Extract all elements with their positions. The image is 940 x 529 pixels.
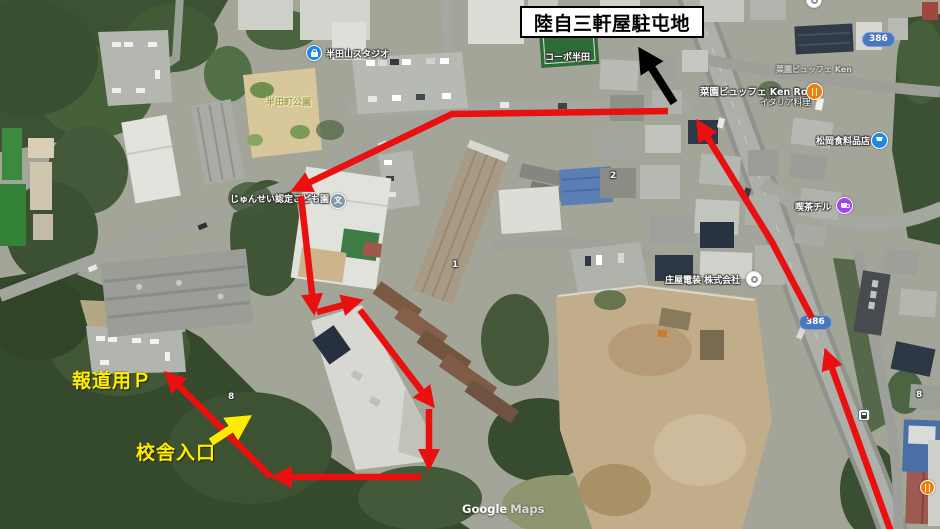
restaurant-icon[interactable]: [806, 83, 823, 100]
building-number-1: 1: [452, 260, 458, 270]
label-shoya-denso[interactable]: 庄屋電装 株式会社: [665, 273, 740, 286]
cart-glyph: [876, 137, 883, 142]
annotated-satellite-map[interactable]: コーポ半田 半田山スタジオ 半田町公園 じゅんせい認定こども園 文 菜園ビュッフ…: [0, 0, 940, 529]
label-matsuoka-grocery[interactable]: 松岡食料品店: [816, 134, 870, 147]
coffee-cup-glyph: [841, 203, 847, 208]
cafe-icon[interactable]: [836, 197, 853, 214]
school-glyph: 文: [334, 197, 342, 205]
partial-poi-icon[interactable]: [806, 0, 822, 8]
label-saien-buffet-cuisine[interactable]: イタリア料理: [760, 96, 811, 108]
fork-glyph: [812, 88, 814, 96]
lock-glyph: [311, 52, 318, 57]
bus-glyph: [861, 412, 867, 419]
ring-glyph: [751, 276, 758, 283]
camp-title-box: 陸自三軒屋駐屯地: [520, 6, 704, 38]
fork-glyph-2: [925, 484, 927, 492]
bus-stop-icon[interactable]: [858, 409, 870, 421]
watermark-maps: Maps: [510, 502, 544, 516]
route-386-shield-top: 386: [862, 32, 895, 47]
google-maps-watermark: GoogleMaps: [462, 502, 545, 516]
school-icon[interactable]: 文: [330, 193, 346, 209]
label-junsei-kodomoen[interactable]: じゅんせい認定こども園: [230, 192, 329, 205]
studio-lock-icon[interactable]: [306, 45, 322, 61]
press-parking-label: 報道用Ｐ: [72, 366, 152, 393]
building-number-8b: 8: [916, 390, 922, 400]
label-coopo-handa[interactable]: コーポ半田: [545, 50, 590, 63]
company-poi-icon[interactable]: [746, 271, 762, 287]
building-number-2: 2: [610, 171, 616, 181]
building-entrance-label: 校舎入口: [136, 438, 216, 465]
label-kissa-chiru[interactable]: 喫茶チル: [795, 200, 831, 213]
shopping-cart-icon[interactable]: [871, 132, 888, 149]
route-386-shield-bottom: 386: [799, 315, 832, 330]
restaurant-icon-2[interactable]: [920, 480, 935, 495]
camp-title-text: 陸自三軒屋駐屯地: [534, 9, 690, 36]
building-number-8a: 8: [228, 392, 234, 402]
ring-glyph-2: [811, 0, 818, 4]
label-handacho-park[interactable]: 半田町公園: [266, 95, 311, 108]
label-saien-buffet-duplicate[interactable]: 菜園ビュッフェ Ken: [776, 64, 852, 75]
watermark-google: Google: [462, 502, 507, 516]
label-handayama-studio[interactable]: 半田山スタジオ: [326, 47, 389, 60]
